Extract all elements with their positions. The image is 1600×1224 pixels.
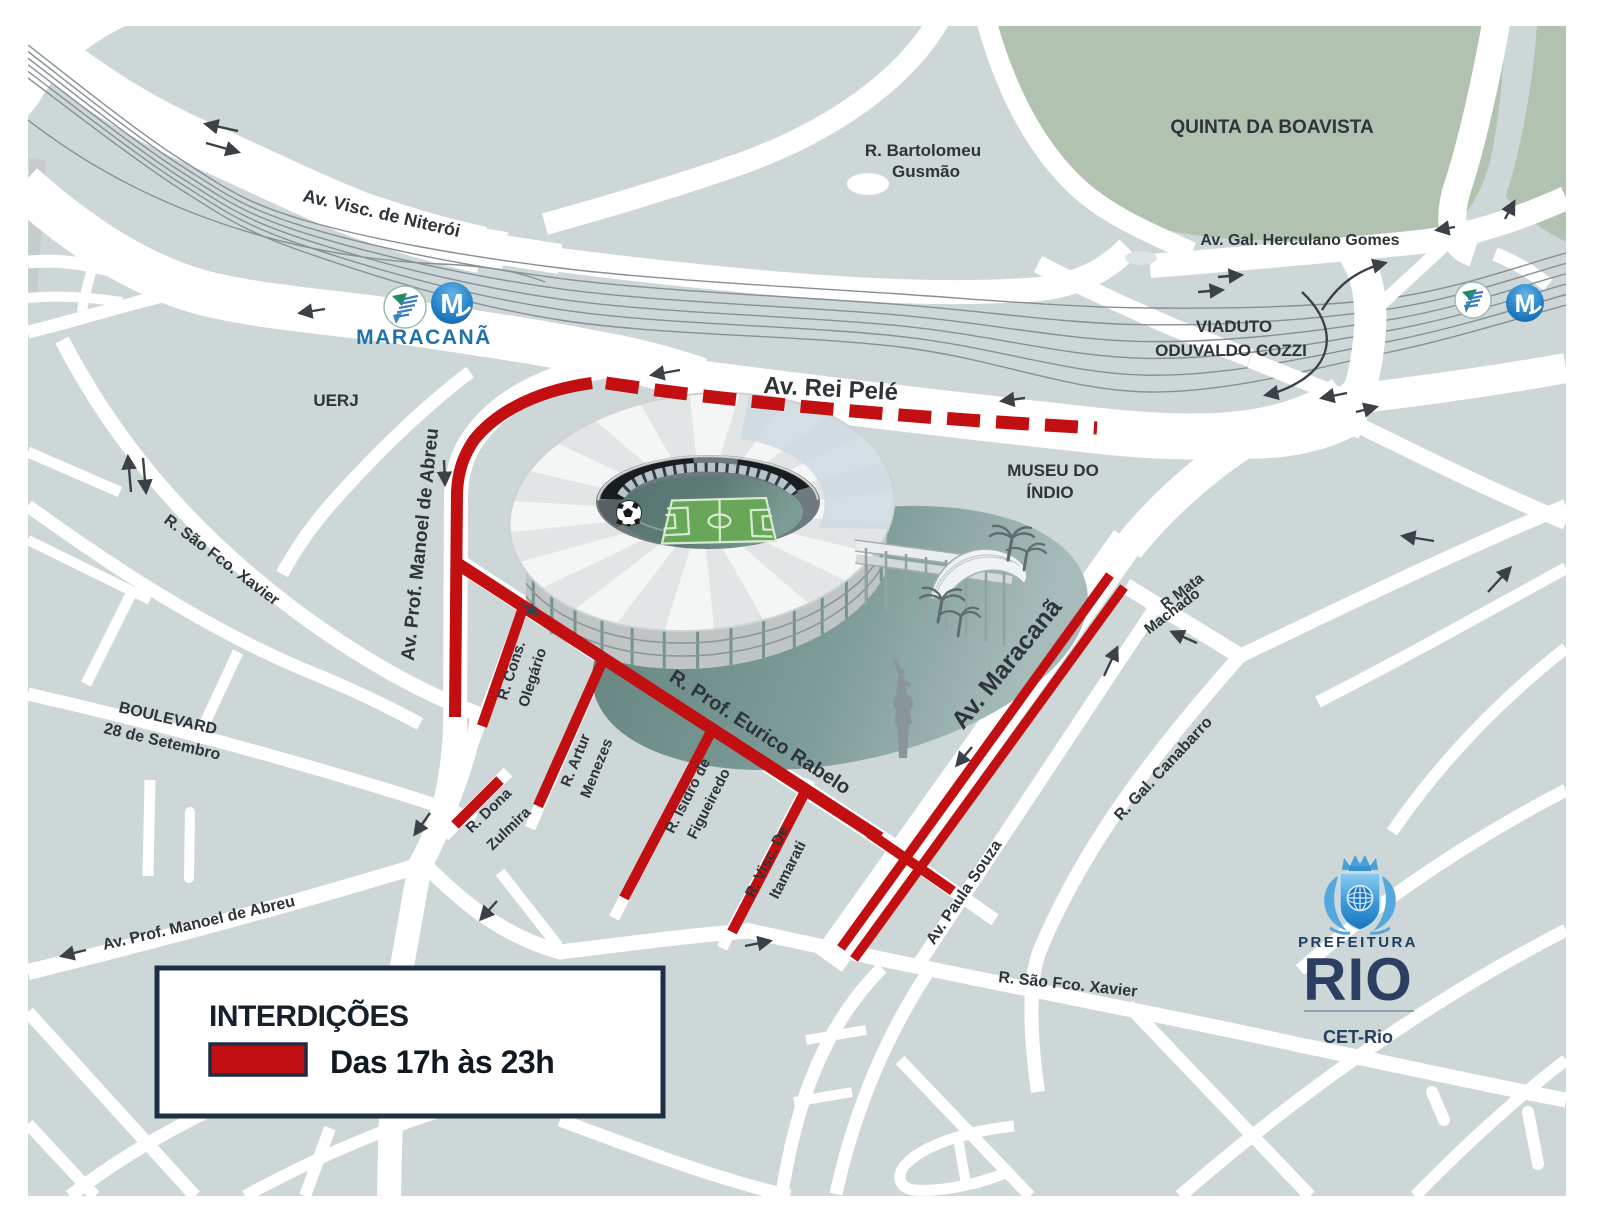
svg-text:Av. Gal. Herculano Gomes: Av. Gal. Herculano Gomes (1200, 232, 1399, 249)
svg-text:UERJ: UERJ (313, 391, 358, 410)
svg-text:QUINTA DA BOAVISTA: QUINTA DA BOAVISTA (1170, 117, 1374, 138)
svg-text:ÍNDIO: ÍNDIO (1026, 483, 1073, 502)
svg-text:MARACANÃ: MARACANÃ (356, 326, 492, 349)
svg-text:Gusmão: Gusmão (892, 162, 960, 181)
svg-text:R. Bartolomeu: R. Bartolomeu (865, 141, 981, 160)
svg-text:CET-Rio: CET-Rio (1323, 1027, 1393, 1047)
svg-text:RIO: RIO (1303, 946, 1413, 1013)
svg-text:Das 17h às 23h: Das 17h às 23h (330, 1044, 554, 1080)
svg-text:VIADUTO: VIADUTO (1196, 317, 1272, 336)
svg-text:ODUVALDO COZZI: ODUVALDO COZZI (1155, 341, 1307, 360)
svg-text:INTERDIÇÕES: INTERDIÇÕES (209, 999, 409, 1033)
svg-text:MUSEU DO: MUSEU DO (1007, 461, 1099, 480)
